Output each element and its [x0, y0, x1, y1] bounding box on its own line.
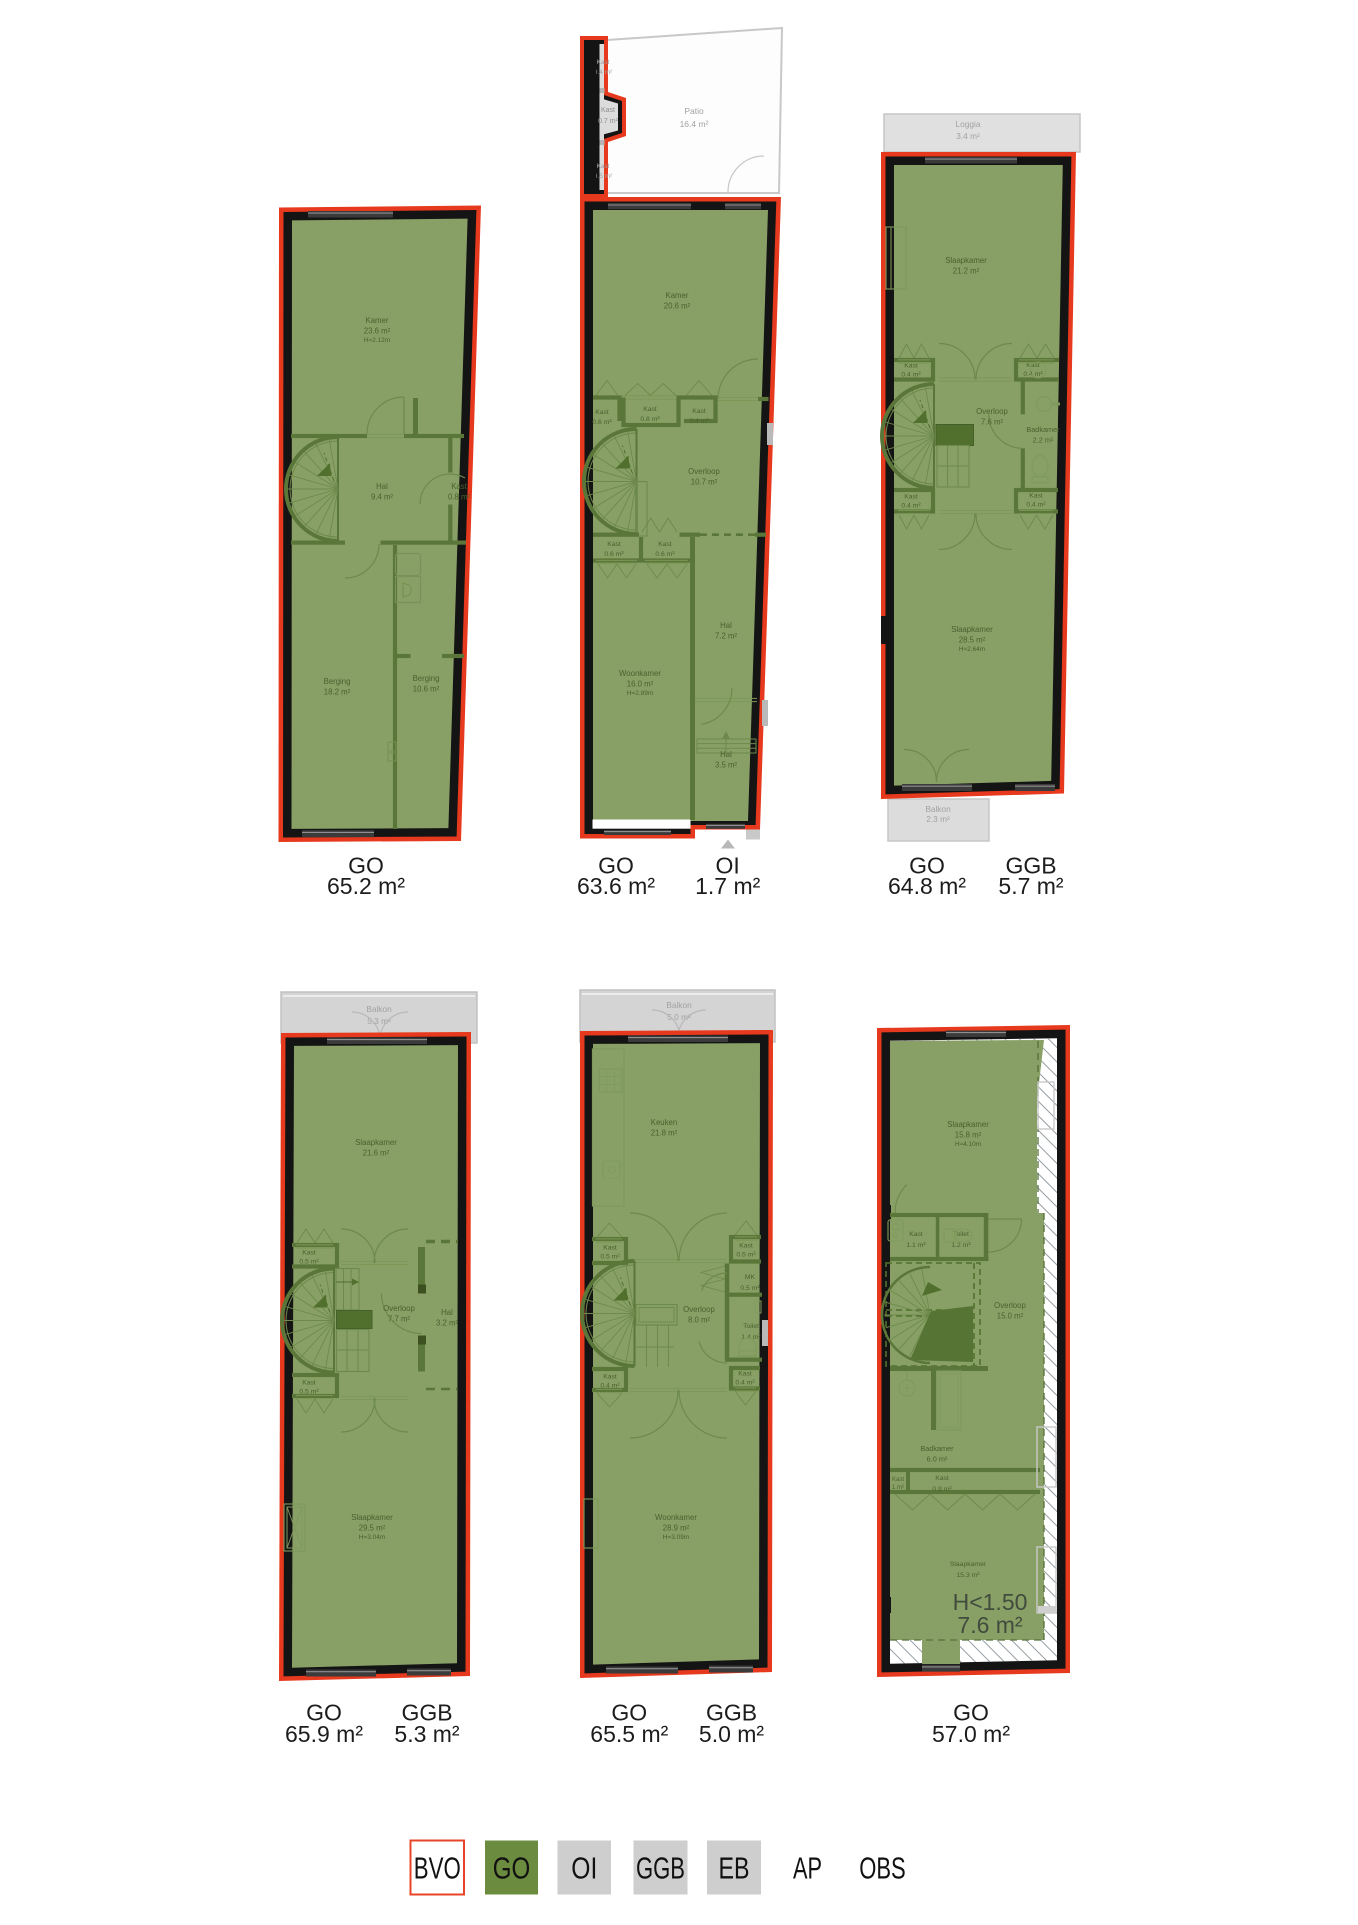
svg-text:Kast: Kast — [595, 409, 609, 416]
svg-text:15.8 m²: 15.8 m² — [955, 1131, 982, 1140]
svg-text:16.0 m²: 16.0 m² — [627, 680, 654, 689]
svg-text:1 m²: 1 m² — [892, 1485, 904, 1491]
svg-text:Badkamer: Badkamer — [920, 1444, 954, 1453]
svg-text:0.7 m²: 0.7 m² — [598, 118, 619, 125]
svg-text:57.0 m²: 57.0 m² — [932, 1721, 1010, 1747]
svg-text:Slaapkamer: Slaapkamer — [351, 1513, 393, 1522]
svg-text:Kast: Kast — [739, 1243, 753, 1250]
svg-text:0.6 m²: 0.6 m² — [604, 551, 624, 558]
svg-text:3.4 m²: 3.4 m² — [956, 131, 980, 141]
svg-text:7.6 m²: 7.6 m² — [981, 418, 1003, 427]
svg-text:Kamer: Kamer — [666, 291, 689, 300]
svg-text:Overloop: Overloop — [683, 1305, 715, 1314]
svg-text:Hal: Hal — [720, 621, 732, 630]
svg-text:GO: GO — [493, 1852, 531, 1886]
svg-text:Overloop: Overloop — [994, 1301, 1026, 1310]
svg-text:Slaapkamer: Slaapkamer — [945, 256, 987, 265]
svg-text:MK: MK — [745, 1274, 756, 1281]
svg-text:1.4 m²: 1.4 m² — [741, 1334, 761, 1341]
svg-text:3.5 m²: 3.5 m² — [715, 761, 737, 770]
svg-text:Woonkamer: Woonkamer — [655, 1513, 697, 1522]
svg-text:Kast: Kast — [892, 1477, 904, 1483]
svg-text:Kast: Kast — [643, 406, 657, 413]
svg-text:9.4 m²: 9.4 m² — [371, 493, 393, 502]
svg-text:Kast: Kast — [596, 163, 609, 170]
svg-text:Kast: Kast — [1029, 493, 1043, 500]
svg-text:H=3.04m: H=3.04m — [359, 1534, 386, 1541]
svg-text:18.2 m²: 18.2 m² — [324, 688, 351, 697]
svg-text:0.4 m²: 0.4 m² — [594, 69, 613, 76]
svg-text:65.9 m²: 65.9 m² — [285, 1721, 363, 1747]
svg-text:0.8 m²: 0.8 m² — [448, 493, 470, 502]
svg-text:5.7 m²: 5.7 m² — [998, 873, 1064, 899]
svg-text:10.6 m²: 10.6 m² — [413, 685, 440, 694]
svg-text:Kast: Kast — [302, 1380, 316, 1387]
svg-text:Kast: Kast — [603, 1374, 617, 1381]
svg-text:H=2.89m: H=2.89m — [627, 690, 654, 697]
svg-text:OI: OI — [571, 1852, 597, 1886]
svg-text:0.5 m²: 0.5 m² — [740, 1285, 760, 1292]
svg-text:21.6 m²: 21.6 m² — [363, 1149, 390, 1158]
svg-text:0.6 m²: 0.6 m² — [592, 419, 612, 426]
svg-text:28.5 m²: 28.5 m² — [959, 636, 986, 645]
svg-text:0.9 m²: 0.9 m² — [932, 1486, 952, 1493]
svg-text:Overloop: Overloop — [976, 407, 1008, 416]
svg-text:Balkon: Balkon — [666, 1000, 692, 1010]
svg-text:23.6 m²: 23.6 m² — [364, 327, 391, 336]
svg-text:Kast: Kast — [738, 1371, 752, 1378]
svg-text:0.5 m²: 0.5 m² — [594, 173, 613, 180]
svg-text:16.4 m²: 16.4 m² — [680, 119, 709, 129]
svg-text:7.2 m²: 7.2 m² — [715, 632, 737, 641]
svg-text:5.0 m²: 5.0 m² — [699, 1721, 765, 1747]
svg-text:1.7 m²: 1.7 m² — [695, 873, 761, 899]
svg-text:Kast: Kast — [603, 1245, 617, 1252]
svg-text:Slaapkamer: Slaapkamer — [951, 625, 993, 634]
svg-text:H≈2.64m: H≈2.64m — [959, 646, 985, 653]
svg-text:15.0 m²: 15.0 m² — [997, 1312, 1024, 1321]
svg-text:7.6 m²: 7.6 m² — [957, 1612, 1023, 1638]
svg-text:Badkamer: Badkamer — [1026, 425, 1060, 434]
svg-text:10.7 m²: 10.7 m² — [691, 478, 718, 487]
svg-text:Slaapkamer: Slaapkamer — [950, 1561, 987, 1568]
svg-text:29.5 m²: 29.5 m² — [359, 1524, 386, 1533]
svg-text:0.4 m²: 0.4 m² — [901, 372, 921, 379]
svg-text:1.1 m²: 1.1 m² — [906, 1242, 926, 1249]
svg-text:Balkon: Balkon — [925, 804, 951, 814]
svg-text:0.5 m²: 0.5 m² — [299, 1389, 319, 1396]
svg-text:20.6 m²: 20.6 m² — [664, 302, 691, 311]
svg-text:Kast: Kast — [904, 494, 918, 501]
svg-text:0.5 m²: 0.5 m² — [600, 1254, 620, 1261]
svg-text:Kast: Kast — [692, 408, 706, 415]
svg-text:GGB: GGB — [636, 1852, 685, 1886]
svg-text:21.8 m²: 21.8 m² — [651, 1129, 678, 1138]
svg-text:Loggia: Loggia — [956, 119, 981, 129]
svg-text:Kast: Kast — [909, 1231, 923, 1238]
svg-text:1.2 m²: 1.2 m² — [951, 1242, 971, 1249]
svg-text:EB: EB — [719, 1852, 750, 1886]
svg-text:Woonkamer: Woonkamer — [619, 669, 661, 678]
svg-text:5.3 m²: 5.3 m² — [394, 1721, 460, 1747]
svg-text:0.5 m²: 0.5 m² — [736, 1252, 756, 1259]
svg-text:0.8 m²: 0.8 m² — [640, 416, 660, 423]
svg-text:64.8 m²: 64.8 m² — [888, 873, 966, 899]
svg-text:0.6 m²: 0.6 m² — [655, 551, 675, 558]
svg-text:63.6 m²: 63.6 m² — [577, 873, 655, 899]
svg-text:Hal: Hal — [376, 482, 388, 491]
svg-text:28.9 m²: 28.9 m² — [663, 1524, 690, 1533]
svg-text:AP: AP — [793, 1852, 822, 1886]
svg-text:Berging: Berging — [413, 674, 440, 683]
svg-text:H≈4.10m: H≈4.10m — [955, 1141, 981, 1148]
svg-text:65.2 m²: 65.2 m² — [327, 873, 405, 899]
svg-text:21.2 m²: 21.2 m² — [953, 267, 980, 276]
svg-text:Patio: Patio — [684, 106, 704, 116]
svg-text:8.0 m²: 8.0 m² — [688, 1316, 710, 1325]
svg-text:Kast: Kast — [451, 482, 467, 491]
svg-text:2.3 m²: 2.3 m² — [926, 814, 950, 824]
svg-text:Kast: Kast — [935, 1475, 949, 1482]
svg-text:Slaapkamer: Slaapkamer — [947, 1120, 989, 1129]
svg-text:0.4 m²: 0.4 m² — [689, 418, 709, 425]
svg-text:H=3.09m: H=3.09m — [663, 1534, 690, 1541]
svg-text:H≈2.12m: H≈2.12m — [364, 337, 390, 344]
svg-text:7.7 m²: 7.7 m² — [388, 1315, 410, 1324]
svg-text:65.5 m²: 65.5 m² — [590, 1721, 668, 1747]
svg-text:Overloop: Overloop — [383, 1304, 415, 1313]
svg-text:Kast: Kast — [658, 541, 672, 548]
svg-text:Kast: Kast — [302, 1250, 316, 1257]
svg-text:OBS: OBS — [859, 1852, 906, 1886]
svg-text:BVO: BVO — [414, 1852, 461, 1886]
svg-text:Slaapkamer: Slaapkamer — [355, 1138, 397, 1147]
svg-text:15.3 m²: 15.3 m² — [956, 1572, 980, 1579]
svg-text:Kast: Kast — [596, 59, 609, 66]
svg-text:0.4 m²: 0.4 m² — [901, 503, 921, 510]
svg-text:Toilet: Toilet — [743, 1323, 759, 1330]
svg-text:0.4 m²: 0.4 m² — [600, 1383, 620, 1390]
svg-text:0.5 m²: 0.5 m² — [299, 1259, 319, 1266]
svg-text:Overloop: Overloop — [688, 467, 720, 476]
svg-text:6.0 m²: 6.0 m² — [927, 1455, 948, 1464]
svg-text:0.4 m²: 0.4 m² — [1026, 502, 1046, 509]
svg-text:Hal: Hal — [441, 1308, 453, 1317]
svg-text:0.4 m²: 0.4 m² — [735, 1380, 755, 1387]
svg-text:3.2 m²: 3.2 m² — [436, 1319, 458, 1328]
svg-text:Kamer: Kamer — [366, 316, 389, 325]
svg-text:Kast: Kast — [607, 541, 621, 548]
svg-text:Hal: Hal — [720, 750, 732, 759]
svg-text:Kast: Kast — [601, 107, 615, 114]
svg-text:Balkon: Balkon — [366, 1004, 392, 1014]
svg-text:Berging: Berging — [324, 677, 351, 686]
svg-text:2.2 m²: 2.2 m² — [1033, 436, 1054, 445]
svg-text:Keuken: Keuken — [651, 1118, 677, 1127]
